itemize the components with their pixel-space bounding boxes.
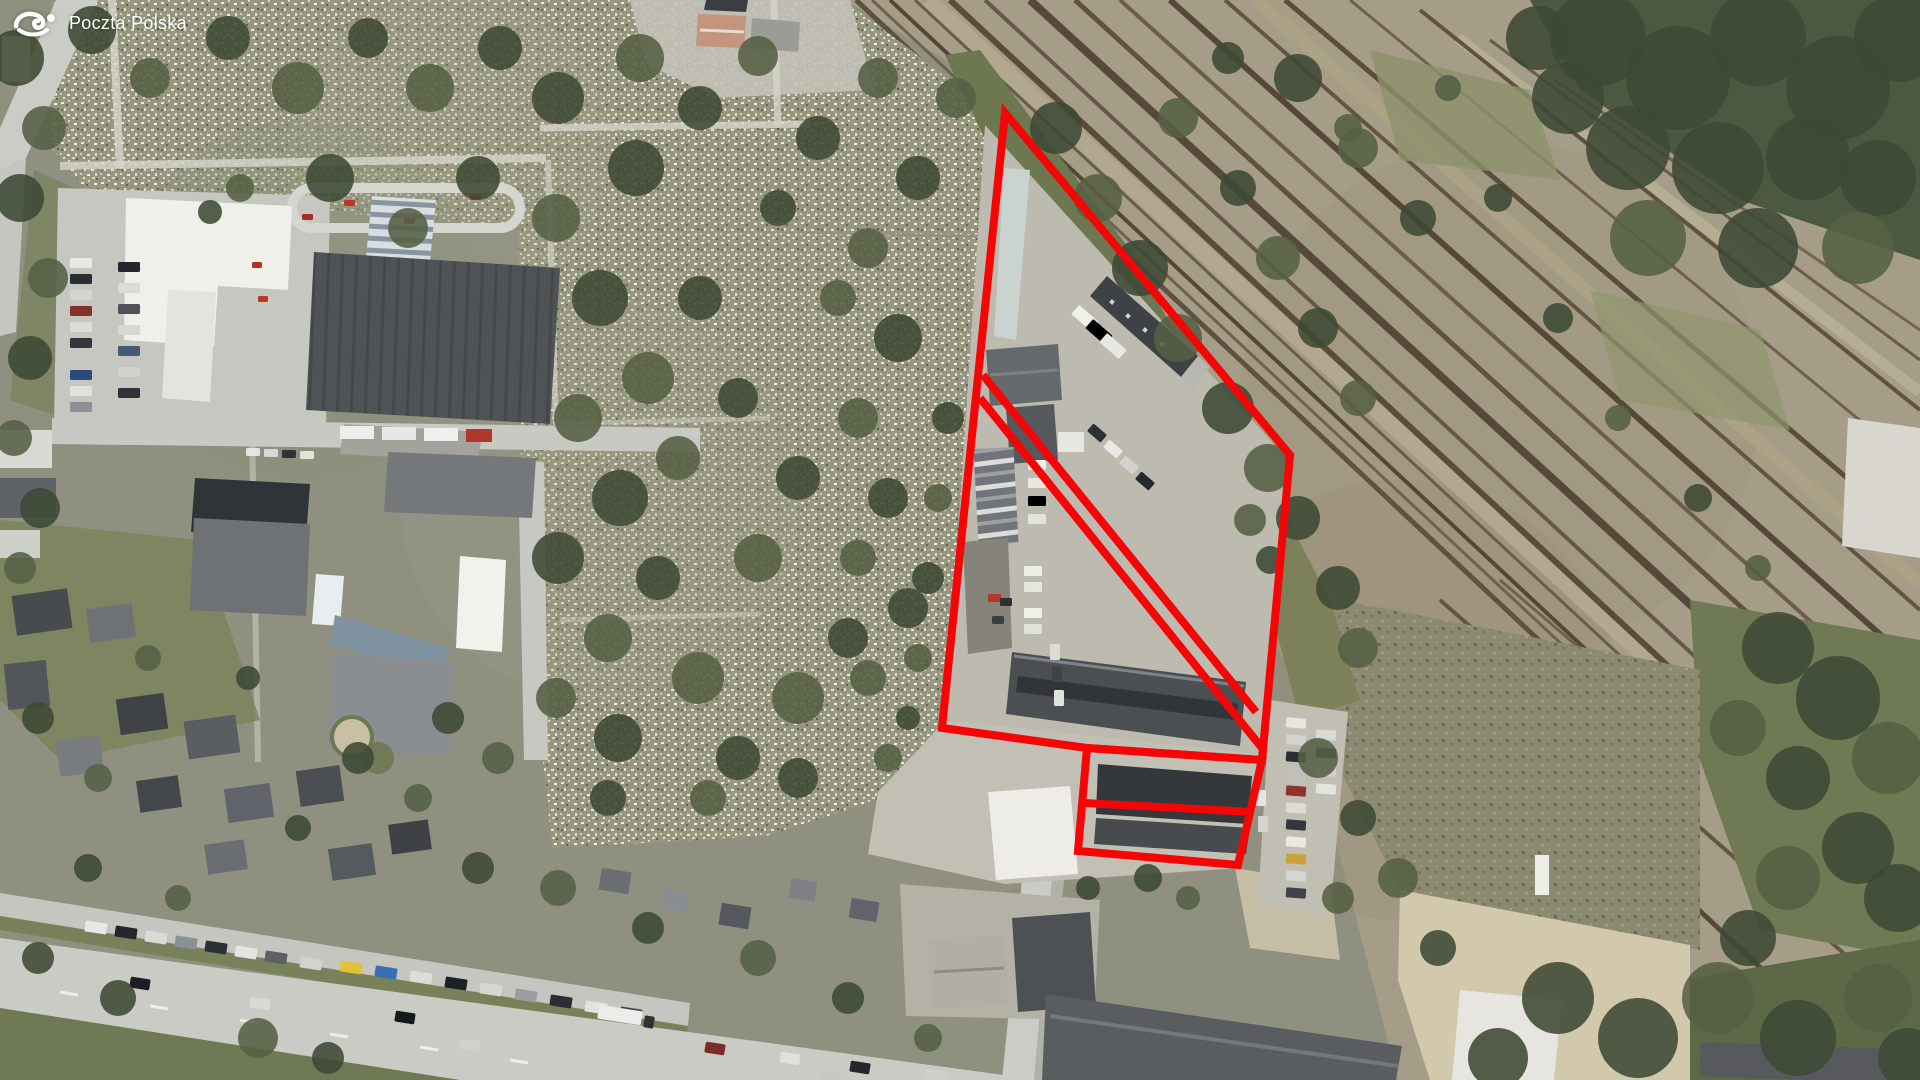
parked-vehicle [1286,887,1307,898]
parked-vehicle [1024,608,1042,618]
parked-vehicle [70,402,92,412]
parked-vehicle [992,616,1004,624]
house [328,843,376,881]
tree [1220,170,1256,206]
tree [1340,380,1376,416]
tree [776,456,820,500]
building-white-south [988,786,1078,880]
poczta-polska-logo: Poczta Polska [13,9,187,37]
parked-vehicle [70,274,92,284]
tree [1435,75,1461,101]
tree [874,314,922,362]
tree [690,780,726,816]
parked-vehicle [302,214,313,220]
parked-vehicle [264,449,278,457]
tree [1074,174,1122,222]
tree [1742,612,1814,684]
tree [226,174,254,202]
parked-vehicle [1050,644,1060,660]
tree [478,26,522,70]
house [224,783,274,823]
tree [22,702,54,734]
tree [342,742,374,774]
tree [1400,200,1436,236]
tree [1756,846,1820,910]
tree [740,940,776,976]
tree [1378,858,1418,898]
tree [1684,484,1712,512]
tree [1134,864,1162,892]
tree [936,78,976,118]
house [204,839,248,874]
parked-vehicle [643,1015,655,1028]
tree [20,488,60,528]
tree [1844,964,1912,1032]
tree [1586,106,1670,190]
parked-vehicle [1286,802,1307,813]
tree [536,678,576,718]
parked-vehicle [282,450,296,458]
tree [840,540,876,576]
tree [632,912,664,944]
tree [1158,98,1198,138]
parked-vehicle [246,448,260,456]
tree [678,86,722,130]
tree [636,556,680,600]
tree [22,106,66,150]
tree [8,336,52,380]
truck-white [1535,855,1549,895]
tree [772,672,824,724]
parked-vehicle [118,262,140,272]
parked-vehicle [70,354,92,364]
tree [888,588,928,628]
rail-platform [1842,418,1920,558]
semi-trailer [466,429,492,442]
tree [592,470,648,526]
parked-vehicle [70,370,92,380]
tree [912,562,944,594]
building-white-small [456,556,506,652]
tree [868,478,908,518]
tree [858,58,898,98]
house [11,588,72,635]
chapel-ridge [700,30,744,32]
postal-shed-white [1058,432,1084,452]
logo-wordmark: Poczta Polska [69,13,187,34]
tree [760,190,796,226]
tree [1176,886,1200,910]
tree [1610,200,1686,276]
tree [462,852,494,884]
parked-vehicle [1052,666,1062,682]
tree [1598,998,1678,1078]
semi-trailer [424,428,458,441]
tree [778,758,818,798]
tree [404,784,432,812]
tree [100,980,136,1016]
tree [1234,504,1266,536]
parked-vehicle [1316,783,1337,794]
parked-vehicle [70,306,92,316]
tree [285,815,311,841]
tree [622,352,674,404]
house [4,660,51,710]
tree [616,34,664,82]
tree [1256,236,1300,280]
parked-vehicle [1024,566,1042,576]
tree [1340,800,1376,836]
tree [1766,746,1830,810]
tree [306,154,354,202]
garden-shed [789,878,818,902]
tree [238,1018,278,1058]
tree [1822,212,1894,284]
tree [1076,876,1100,900]
tree [1682,962,1754,1034]
tree [432,702,464,734]
tree [1766,116,1850,200]
tree [608,140,664,196]
garden-shed [718,903,751,929]
tree [1298,308,1338,348]
tree [532,194,580,242]
tree [348,18,388,58]
tree [820,280,856,316]
parked-vehicle [70,258,92,268]
tree [1322,882,1354,914]
parked-vehicle [1286,734,1307,745]
tree [272,62,324,114]
parked-vehicle [1286,853,1307,864]
tree [896,706,920,730]
satellite-map[interactable] [0,0,1920,1080]
tree [74,854,102,882]
parked-vehicle [1000,598,1012,606]
tree [1274,54,1322,102]
tree [590,780,626,816]
parked-vehicle [118,325,140,335]
tree [584,614,632,662]
tree [1420,930,1456,966]
tree [4,552,36,584]
tree [738,36,778,76]
semi-trailer [340,426,374,439]
cemetery-path [540,124,810,128]
tree [1710,700,1766,756]
building-gray-specked [190,518,310,616]
tree [572,270,628,326]
parked-vehicle [70,322,92,332]
tree [456,156,500,200]
parked-vehicle [1286,717,1307,728]
tree [716,736,760,780]
tree [236,666,260,690]
tree [656,436,700,480]
tree [1720,910,1776,966]
tree [832,982,864,1014]
tree [914,1024,942,1052]
tree [1338,628,1378,668]
parked-vehicle [1286,819,1307,830]
retail-building-wing [162,290,216,402]
tree [135,645,161,671]
tree [874,744,902,772]
postal-sheds-rows [974,447,1019,545]
house [388,819,432,854]
map-viewport: Poczta Polska [0,0,1920,1080]
parked-vehicle [988,594,1001,602]
parked-vehicle [1258,816,1268,832]
tree [1672,122,1764,214]
tree [28,258,68,298]
warehouse-south [384,452,536,518]
tree [1212,42,1244,74]
posthorn-icon [13,9,59,37]
tree [22,942,54,974]
tree [1506,6,1570,70]
tree [828,618,868,658]
tree [554,394,602,442]
parked-vehicle [118,388,140,398]
parked-vehicle [300,451,314,459]
tree [850,660,886,696]
tree [312,1042,344,1074]
parked-vehicle [118,346,140,356]
tree [165,885,191,911]
tree [388,208,428,248]
tree [896,156,940,200]
parked-vehicle [252,262,262,268]
postal-building-mid [963,538,1012,654]
house [86,603,136,643]
tree [1522,962,1594,1034]
tree [84,764,112,792]
chapel-outbuilding [704,0,748,12]
parked-vehicle [1028,496,1046,506]
tree [678,276,722,320]
tree [540,870,576,906]
tree [130,58,170,98]
parked-vehicle [1286,785,1307,796]
parked-vehicle [258,296,268,302]
tree [1484,184,1512,212]
tree [1298,738,1338,778]
garden-shed [849,898,880,922]
tree [848,228,888,268]
parked-vehicle [118,304,140,314]
tree [932,402,964,434]
tree [904,644,932,672]
tree [1316,566,1360,610]
building-long-bottom [1042,994,1402,1080]
parked-vehicle [1024,624,1042,634]
house [116,693,169,735]
retail-hall-dark [306,252,560,424]
tree [718,378,758,418]
parked-vehicle [1286,836,1307,847]
house [136,775,182,813]
tree [796,116,840,160]
tree [532,532,584,584]
tree [206,16,250,60]
tree [1543,303,1573,333]
tree [198,200,222,224]
parked-vehicle [70,338,92,348]
tree [1334,114,1362,142]
tree [1796,656,1880,740]
tree [594,714,642,762]
house [296,765,345,807]
parked-vehicle [118,367,140,377]
tree [734,534,782,582]
garden-shed [598,868,631,894]
parked-vehicle [70,386,92,396]
tree [1840,140,1916,216]
tree [1718,208,1798,288]
tree [1745,555,1771,581]
house [184,715,241,760]
parked-vehicle [344,200,355,206]
parked-vehicle [70,290,92,300]
tree [482,742,514,774]
parked-vehicle [118,283,140,293]
tree [838,398,878,438]
parked-vehicle [1028,514,1046,524]
tree [406,64,454,112]
tree [1605,405,1631,431]
tree [532,72,584,124]
tree [1532,62,1604,134]
semi-trailer [382,427,416,440]
parked-vehicle [1054,690,1064,706]
tree [924,484,952,512]
tree [672,652,724,704]
parked-vehicle [1286,870,1307,881]
garden-shed [659,888,690,912]
tree [1760,1000,1836,1076]
parked-vehicle [1024,582,1042,592]
